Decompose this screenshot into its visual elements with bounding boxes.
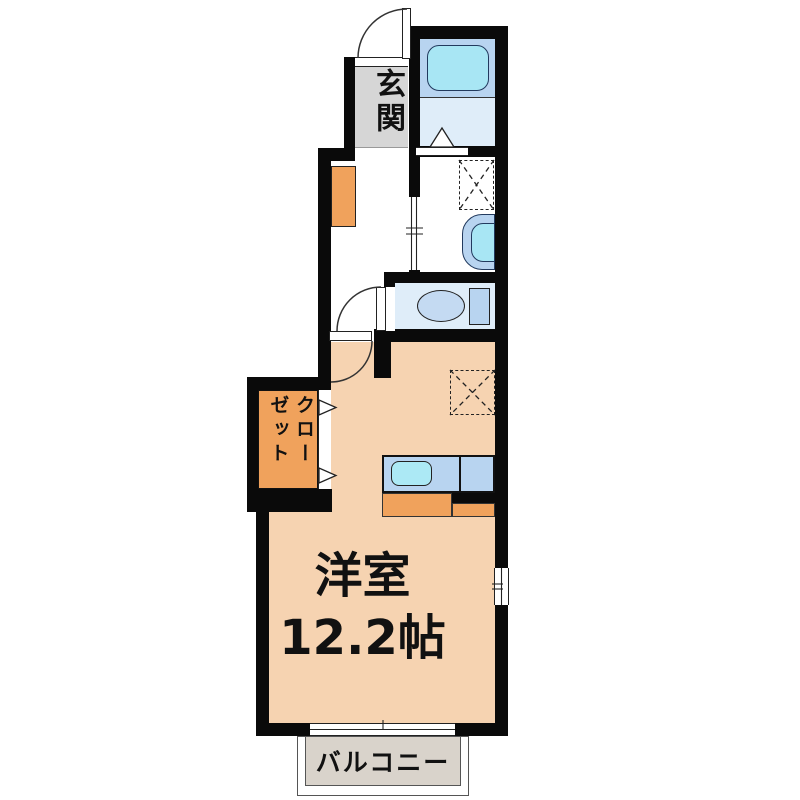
wall-kitchen-stub — [452, 492, 495, 503]
wall-right-outer-upper — [495, 26, 508, 568]
south-window — [310, 723, 455, 736]
washer-space — [459, 160, 494, 210]
main-room-label-block: 洋室 12.2帖 — [255, 545, 470, 670]
bathroom-door-opening — [416, 147, 468, 156]
wall-right-outer-lower — [495, 605, 508, 736]
closet-label-right-column: クロー — [290, 395, 316, 485]
washbasin-bowl — [471, 223, 495, 262]
wall-bathroom-top — [409, 26, 508, 39]
kitchen-base-right — [452, 503, 495, 517]
toilet-door-leaf — [376, 287, 386, 331]
entrance-label: 玄関 — [364, 68, 402, 146]
wall-bottom-left — [256, 723, 310, 736]
wall-left-outer-upper — [318, 148, 331, 390]
shoe-cabinet — [331, 166, 356, 227]
main-room-label: 洋室 — [255, 545, 470, 607]
kitchen-counter-divider — [459, 455, 461, 493]
balcony-label: バルコニー — [305, 736, 461, 786]
wall-doorway-stub — [374, 329, 391, 378]
toilet-tank — [469, 288, 490, 325]
entrance-threshold — [355, 57, 408, 67]
main-room-size: 12.2帖 — [255, 607, 470, 669]
kitchen-base — [382, 493, 452, 517]
bathtub — [427, 45, 489, 91]
closet-door-panel — [318, 390, 331, 489]
wall-bottom-right — [455, 723, 508, 736]
room-door-leaf — [329, 331, 372, 341]
bathroom-floor — [420, 97, 495, 146]
washroom-sliding-door — [408, 197, 421, 270]
wall-entrance-left — [344, 57, 355, 153]
toilet-bowl — [417, 290, 465, 322]
kitchen-sink — [391, 461, 432, 486]
fridge-space — [450, 370, 495, 415]
entrance-door-arc — [358, 9, 407, 58]
east-window — [494, 568, 509, 605]
entrance-door-leaf — [402, 8, 411, 59]
closet-label: クロー ゼット — [260, 395, 316, 485]
wall-toilet-top — [384, 272, 508, 283]
closet-label-left-column: ゼット — [265, 395, 291, 485]
floor-plan: 玄関 クロー ゼット 洋室 12.2帖 バルコニー — [0, 0, 800, 800]
wall-toilet-bottom — [384, 329, 508, 342]
wall-closet-top — [247, 377, 331, 390]
